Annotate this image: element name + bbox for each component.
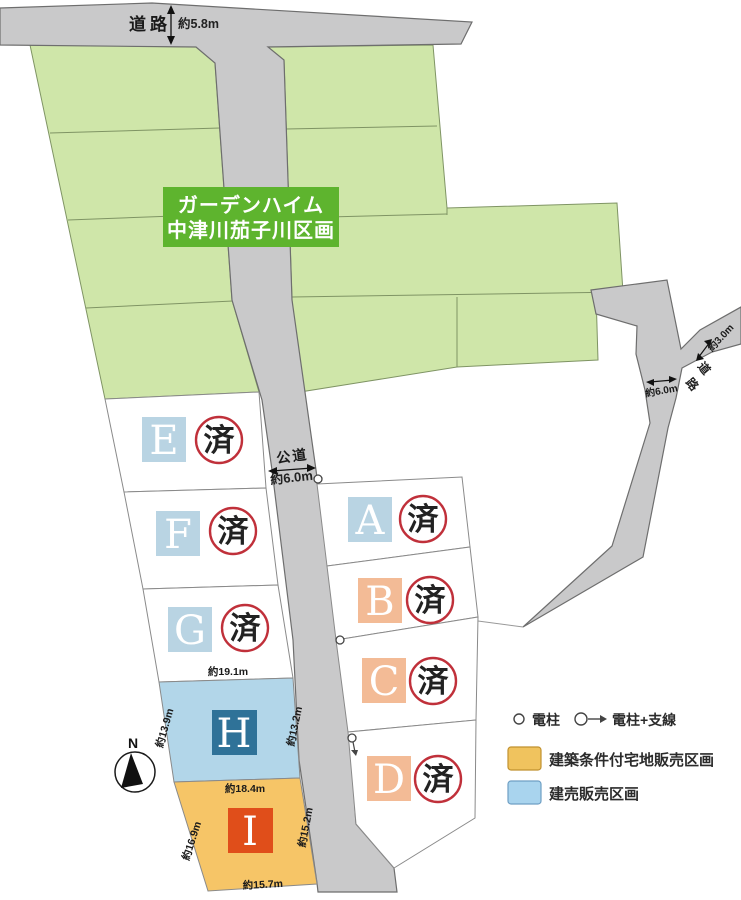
legend-orange-swatch <box>508 747 541 770</box>
plot-letter-H: H <box>217 711 252 757</box>
plot-letter-D: D <box>373 757 405 803</box>
stamp-A: 済 <box>408 502 440 537</box>
stamp-E: 済 <box>204 423 236 458</box>
legend-pole-wire-icon <box>575 713 587 725</box>
legend-blue-label: 建売販売区画 <box>549 785 639 803</box>
legend-blue-swatch <box>508 781 541 804</box>
pole-with-wire-icon <box>348 734 356 742</box>
stamp-D: 済 <box>423 762 455 797</box>
stamp-B: 済 <box>415 583 447 618</box>
top-road-name: 道路 <box>129 14 171 34</box>
pole-icon <box>336 636 344 644</box>
plot-letter-A: A <box>355 498 386 544</box>
stamp-G: 済 <box>230 611 262 646</box>
dim-i-top: 約18.4m <box>225 782 265 795</box>
dim-i-bottom: 約15.7m <box>242 877 283 892</box>
site-plan-map: A B C D E F G H I 済 済 済 済 済 済 済 道路 <box>0 0 741 900</box>
stamp-C: 済 <box>418 664 450 699</box>
compass-n-label: N <box>128 735 138 751</box>
plot-letter-G: G <box>174 608 206 654</box>
legend-pole-label: 電柱 <box>532 712 560 728</box>
plot-letter-C: C <box>369 659 400 705</box>
plot-letter-F: F <box>164 512 192 558</box>
plot-letter-I: I <box>242 809 258 855</box>
stamp-F: 済 <box>218 514 250 549</box>
pole-icon <box>314 475 322 483</box>
legend-orange-label: 建築条件付宅地販売区画 <box>549 751 714 769</box>
legend-pole-icon <box>514 714 524 724</box>
plot-letter-E: E <box>149 418 178 464</box>
map-canvas: A B C D E F G H I 済 済 済 済 済 済 済 道路 <box>0 0 741 900</box>
title-box: ガーデンハイム 中津川茄子川区画 <box>163 187 339 247</box>
dim-h-top: 約19.1m <box>208 665 248 678</box>
plot-letter-B: B <box>365 579 394 625</box>
legend-pole-wire-label: 電柱+支線 <box>612 712 676 728</box>
top-road-width: 約5.8m <box>178 16 219 31</box>
title-line-1: ガーデンハイム <box>178 193 324 217</box>
title-line-2: 中津川茄子川区画 <box>167 218 335 242</box>
